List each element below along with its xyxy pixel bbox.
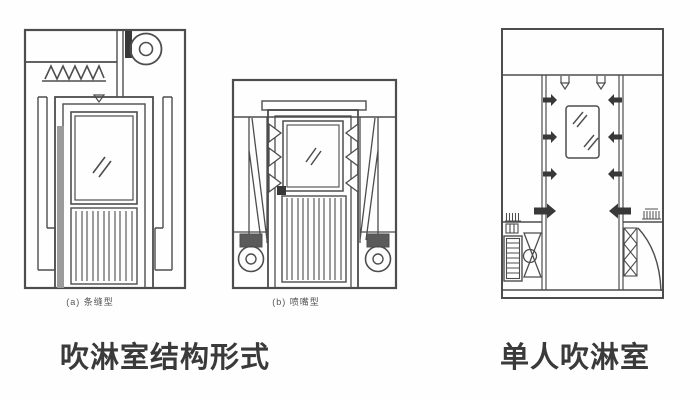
blower-icon bbox=[524, 233, 542, 277]
airflow-arrow-icons bbox=[534, 204, 631, 219]
fan-icon bbox=[125, 31, 162, 65]
door-window-glass bbox=[71, 112, 137, 204]
left-figure-caption: 吹淋室结构形式 bbox=[30, 343, 300, 375]
door-window-glass bbox=[283, 121, 343, 191]
side-nozzle-icons bbox=[543, 94, 622, 180]
subfigure-a-label: (a) 条缝型 bbox=[38, 298, 142, 307]
door-header bbox=[262, 101, 366, 110]
slit-type-air-shower-drawing bbox=[25, 30, 185, 288]
duct-lines bbox=[117, 30, 123, 97]
nozzle-icons-right bbox=[346, 124, 358, 192]
grille-icon-left bbox=[505, 213, 521, 221]
door bbox=[55, 95, 153, 288]
door-window-glass bbox=[566, 106, 599, 158]
right-figure-caption: 单人吹淋室 bbox=[475, 343, 675, 375]
air-shower-technical-drawing bbox=[0, 0, 700, 401]
single-person-air-shower-drawing bbox=[502, 29, 663, 298]
cabinet-outline bbox=[502, 29, 663, 298]
diagram-page: (a) 条缝型 (b) 喷嘴型 吹淋室结构形式 单人吹淋室 bbox=[0, 0, 700, 401]
door-latch bbox=[94, 95, 104, 102]
side-duct-panel-right bbox=[360, 117, 378, 243]
door-louver-grille bbox=[71, 208, 137, 284]
door-seal-strip bbox=[57, 126, 64, 288]
chamber-walls bbox=[542, 75, 623, 290]
motor-box bbox=[506, 224, 518, 233]
subfigure-b-label: (b) 喷嘴型 bbox=[244, 298, 348, 307]
door-lock bbox=[277, 186, 286, 195]
air-slit-channel-left bbox=[38, 97, 55, 270]
grille-icon-right bbox=[642, 209, 661, 219]
fan-icon-left bbox=[233, 232, 268, 272]
nozzle-type-air-shower-drawing bbox=[233, 80, 396, 288]
curved-duct bbox=[638, 228, 661, 291]
door bbox=[268, 110, 358, 288]
door-louver-grille bbox=[282, 196, 346, 282]
ceiling-nozzle-icons bbox=[561, 76, 605, 89]
side-duct-panel-left bbox=[249, 117, 267, 243]
air-slit-channel-right bbox=[155, 97, 172, 270]
hatched-column bbox=[624, 228, 637, 276]
heater-coil-icon bbox=[42, 66, 106, 81]
hepa-filter-icon bbox=[504, 236, 522, 281]
nozzle-icons-left bbox=[269, 124, 281, 192]
